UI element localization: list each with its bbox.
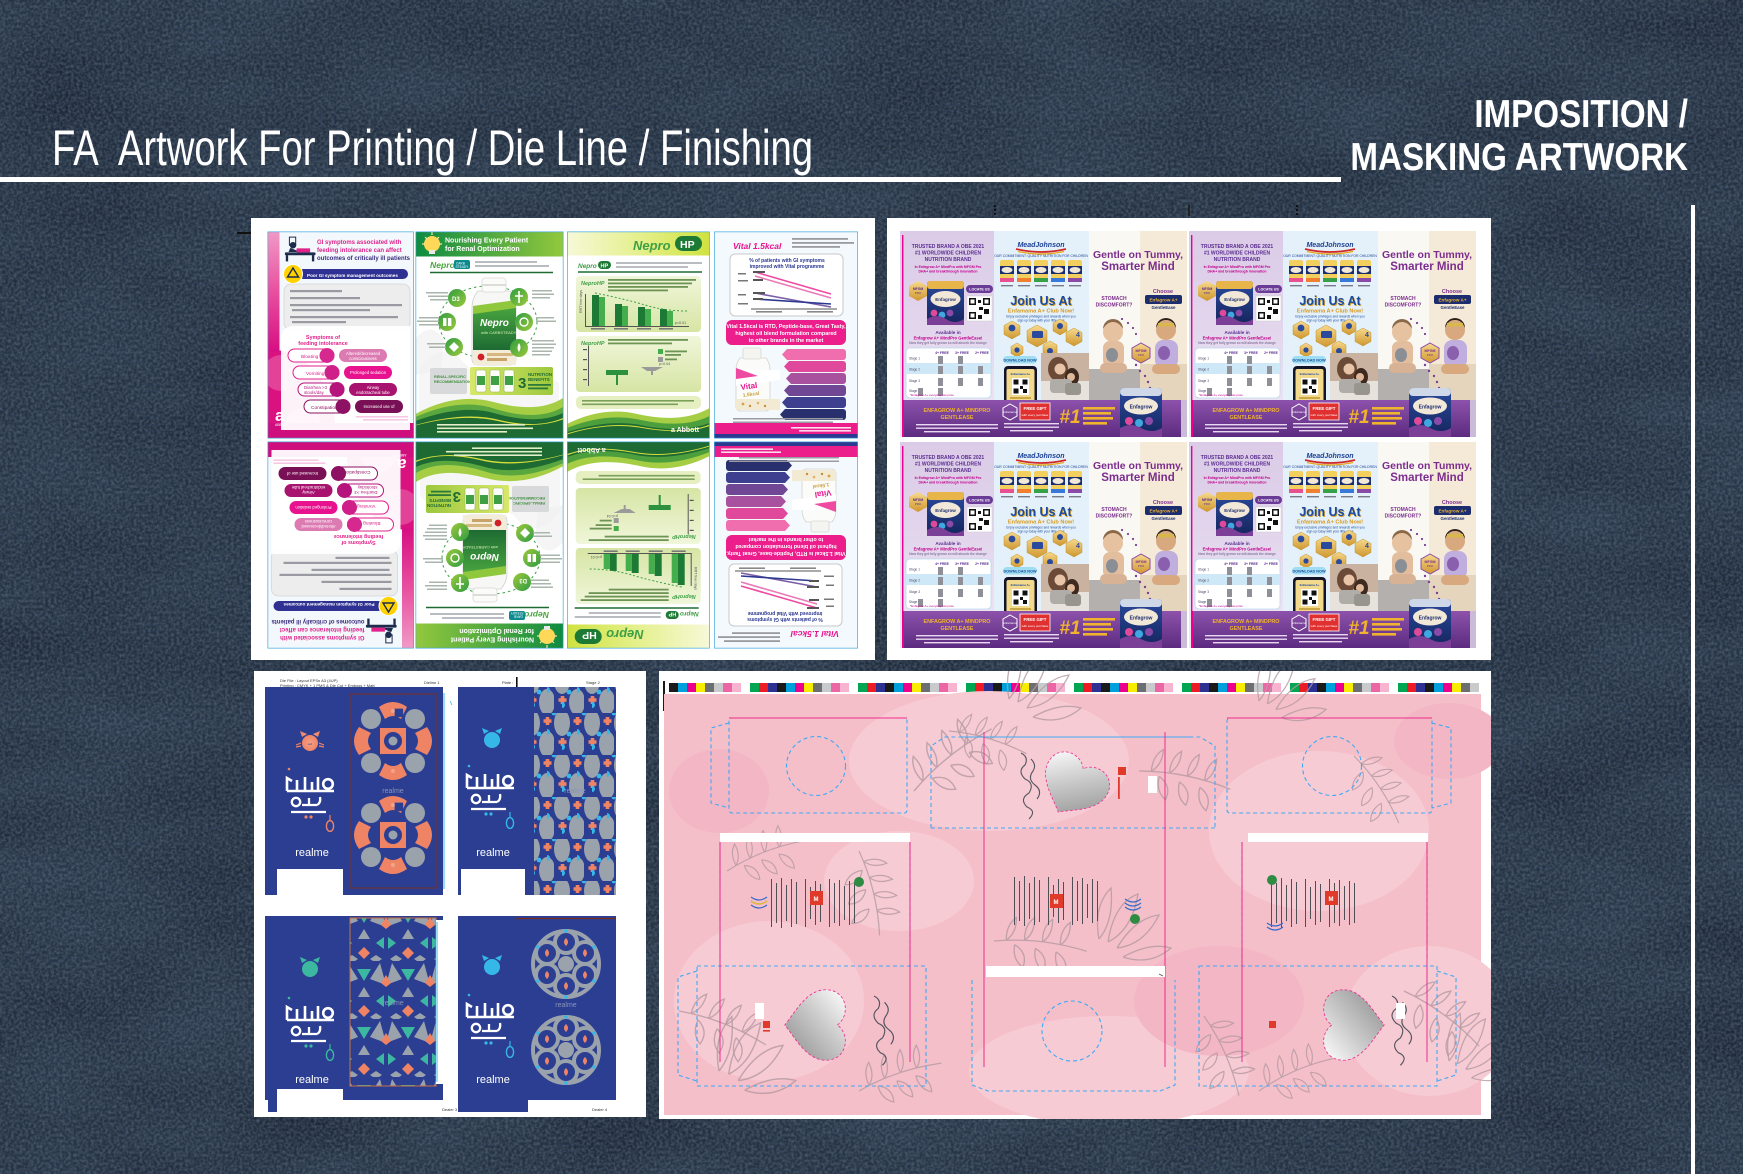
svg-text:highest oil blend formulation: highest oil blend formulation compared xyxy=(735,331,836,337)
svg-text:M: M xyxy=(814,897,819,903)
svg-text:BENEFITS: BENEFITS xyxy=(528,377,550,382)
svg-text:HP: HP xyxy=(601,264,609,270)
svg-text:M: M xyxy=(1329,897,1334,903)
svg-text:Nourishing Every Patient: Nourishing Every Patient xyxy=(445,238,529,245)
svg-text:Nepro: Nepro xyxy=(430,260,455,270)
svg-text:NeproHP: NeproHP xyxy=(581,341,605,347)
svg-text:Poor GI symptom management out: Poor GI symptom management outcomes xyxy=(307,273,398,278)
svg-text:Dealer 4: Dealer 4 xyxy=(592,1107,608,1112)
svg-text:realme: realme xyxy=(295,1074,329,1086)
svg-text:Plate :: Plate : xyxy=(502,680,513,685)
svg-text:Nepro: Nepro xyxy=(578,263,597,270)
svg-text:D3: D3 xyxy=(452,297,460,303)
svg-text:Stage 2: Stage 2 xyxy=(586,680,601,685)
svg-text:feeding intolerance: feeding intolerance xyxy=(298,341,347,347)
svg-text:endotracheal tube: endotracheal tube xyxy=(356,390,390,395)
svg-text:3: 3 xyxy=(518,375,526,392)
svg-text:M: M xyxy=(1054,900,1059,906)
svg-text:Nepro: Nepro xyxy=(480,318,509,329)
svg-text:realme: realme xyxy=(476,847,510,859)
svg-text:Prolonged sedation: Prolonged sedation xyxy=(350,370,387,375)
svg-text:realme: realme xyxy=(476,1074,510,1086)
svg-text:for Renal Optimization: for Renal Optimization xyxy=(445,246,520,253)
svg-text:consciousness: consciousness xyxy=(349,356,376,361)
svg-text:ABBOTT: ABBOTT xyxy=(275,423,289,427)
svg-text:with CARBSTEADY: with CARBSTEADY xyxy=(481,330,517,335)
svg-text:Vomiting: Vomiting xyxy=(306,371,325,377)
svg-text:RENAL-SPECIFIC: RENAL-SPECIFIC xyxy=(434,375,466,379)
svg-text:Increased use of: Increased use of xyxy=(364,404,396,409)
svg-text:RECOMMENDATION: RECOMMENDATION xyxy=(434,380,471,384)
svg-text:feeding intolerance can affect: feeding intolerance can affect xyxy=(317,248,402,254)
svg-text:realme: realme xyxy=(382,788,404,795)
svg-text:realme: realme xyxy=(564,788,586,795)
svg-text:Bloating: Bloating xyxy=(301,354,319,360)
svg-text:Dieline 1: Dieline 1 xyxy=(424,680,440,685)
svg-text:Vital 1.5kcal: Vital 1.5kcal xyxy=(733,241,782,251)
svg-text:improved with Vital programme: improved with Vital programme xyxy=(750,264,825,270)
svg-text:realme: realme xyxy=(295,847,329,859)
svg-text:a Abbott: a Abbott xyxy=(671,427,700,434)
svg-text:to other brands in the market: to other brands in the market xyxy=(749,338,824,344)
svg-text:realme: realme xyxy=(555,1002,577,1009)
svg-text:GI symptoms associated with: GI symptoms associated with xyxy=(317,240,402,246)
svg-text:RRT free days: RRT free days xyxy=(579,290,583,313)
svg-text:Vital 1.5kcal is RTD, Peptide-: Vital 1.5kcal is RTD, Peptide-base, Grea… xyxy=(726,324,846,330)
svg-text:realme: realme xyxy=(382,1000,404,1007)
svg-text:Nepro: Nepro xyxy=(633,238,671,253)
svg-text:Dealer 3: Dealer 3 xyxy=(442,1107,458,1112)
svg-text:HP: HP xyxy=(680,239,695,251)
svg-text:outcomes of critically ill pat: outcomes of critically ill patients xyxy=(317,256,411,262)
svg-text:p=0.04: p=0.04 xyxy=(659,362,670,366)
svg-text:NeproHP: NeproHP xyxy=(581,281,605,287)
svg-text:stools/day: stools/day xyxy=(304,390,325,395)
svg-text:Constipation: Constipation xyxy=(311,405,338,411)
svg-text:eid: eid xyxy=(308,742,312,746)
svg-text:STEADY: STEADY xyxy=(456,265,470,269)
svg-text:p<0.01: p<0.01 xyxy=(675,321,686,325)
